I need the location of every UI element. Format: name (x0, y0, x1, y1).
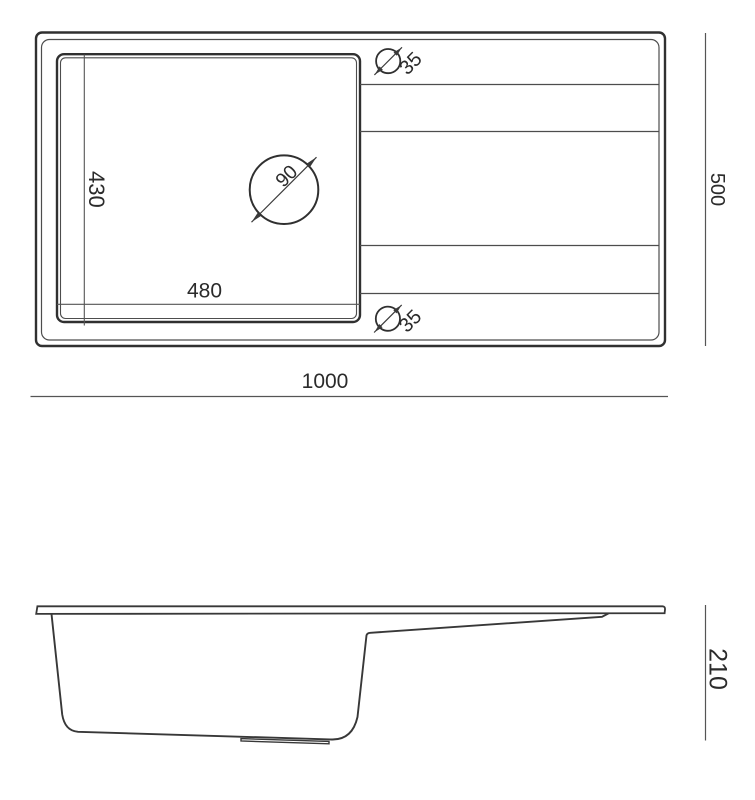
svg-text:480: 480 (187, 280, 222, 303)
svg-text:430: 430 (84, 171, 109, 208)
svg-text:35: 35 (395, 48, 426, 79)
svg-text:1000: 1000 (302, 370, 349, 393)
svg-text:210: 210 (704, 648, 732, 690)
svg-text:500: 500 (706, 173, 728, 206)
svg-text:35: 35 (395, 306, 426, 337)
svg-text:90: 90 (271, 161, 302, 192)
